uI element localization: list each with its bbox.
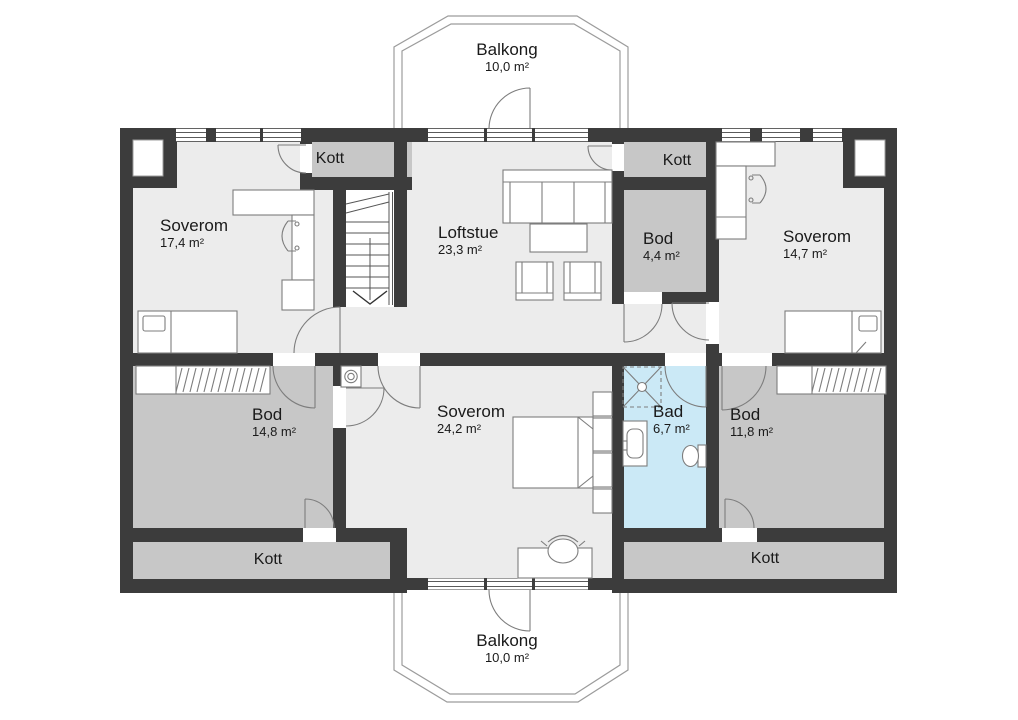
room-name: Balkong <box>427 40 587 59</box>
room-name: Kott <box>637 151 717 170</box>
room-label-kott-bottom-left: Kott <box>188 550 348 569</box>
room-label-kott-top-left: Kott <box>290 149 370 168</box>
room-label-balkong-top: Balkong 10,0 m² <box>427 40 587 75</box>
room-label-balkong-bottom: Balkong 10,0 m² <box>427 631 587 666</box>
room-name: Bod <box>730 405 773 424</box>
room-area: 10,0 m² <box>427 650 587 666</box>
room-label-bad: Bad 6,7 m² <box>653 402 690 437</box>
washing-machine-icon <box>341 366 361 387</box>
room-area: 17,4 m² <box>160 235 228 251</box>
room-label-bod-44: Bod 4,4 m² <box>643 229 680 264</box>
room-label-kott-bottom-right: Kott <box>685 549 845 568</box>
room-area: 4,4 m² <box>643 248 680 264</box>
room-name: Balkong <box>427 631 587 650</box>
room-label-soverom-ne: Soverom 14,7 m² <box>783 227 851 262</box>
bed-icon <box>138 311 237 353</box>
room-name: Kott <box>685 549 845 568</box>
room-label-bod-se: Bod 11,8 m² <box>730 405 773 440</box>
room-label-loftstue: Loftstue 23,3 m² <box>438 223 499 258</box>
floorplan: Balkong 10,0 m² Kott Soverom 17,4 m² Lof… <box>0 0 1018 720</box>
room-label-soverom-s: Soverom 24,2 m² <box>437 402 505 437</box>
room-name: Loftstue <box>438 223 499 242</box>
room-label-soverom-nw: Soverom 17,4 m² <box>160 216 228 251</box>
room-area: 6,7 m² <box>653 421 690 437</box>
room-area: 23,3 m² <box>438 242 499 258</box>
floorplan-drawing <box>0 0 1018 720</box>
room-area: 14,7 m² <box>783 246 851 262</box>
room-name: Soverom <box>160 216 228 235</box>
toilet-icon <box>683 445 707 467</box>
bed-icon <box>785 311 881 353</box>
room-name: Bad <box>653 402 690 421</box>
room-area: 11,8 m² <box>730 424 773 440</box>
room-name: Soverom <box>437 402 505 421</box>
sofa-icon <box>503 170 612 223</box>
room-area: 14,8 m² <box>252 424 296 440</box>
room-name: Soverom <box>783 227 851 246</box>
room-name: Bod <box>252 405 296 424</box>
room-name: Bod <box>643 229 680 248</box>
sink-icon <box>623 421 647 466</box>
coffee-table-icon <box>530 224 587 252</box>
room-area: 24,2 m² <box>437 421 505 437</box>
chair-icon <box>564 262 601 300</box>
room-name: Kott <box>188 550 348 569</box>
room-area: 10,0 m² <box>427 59 587 75</box>
room-label-bod-sw: Bod 14,8 m² <box>252 405 296 440</box>
room-label-kott-top-right: Kott <box>637 151 717 170</box>
room-name: Kott <box>290 149 370 168</box>
wardrobe-icon <box>136 366 270 394</box>
wardrobe-icon <box>777 366 886 394</box>
chair-icon <box>516 262 553 300</box>
